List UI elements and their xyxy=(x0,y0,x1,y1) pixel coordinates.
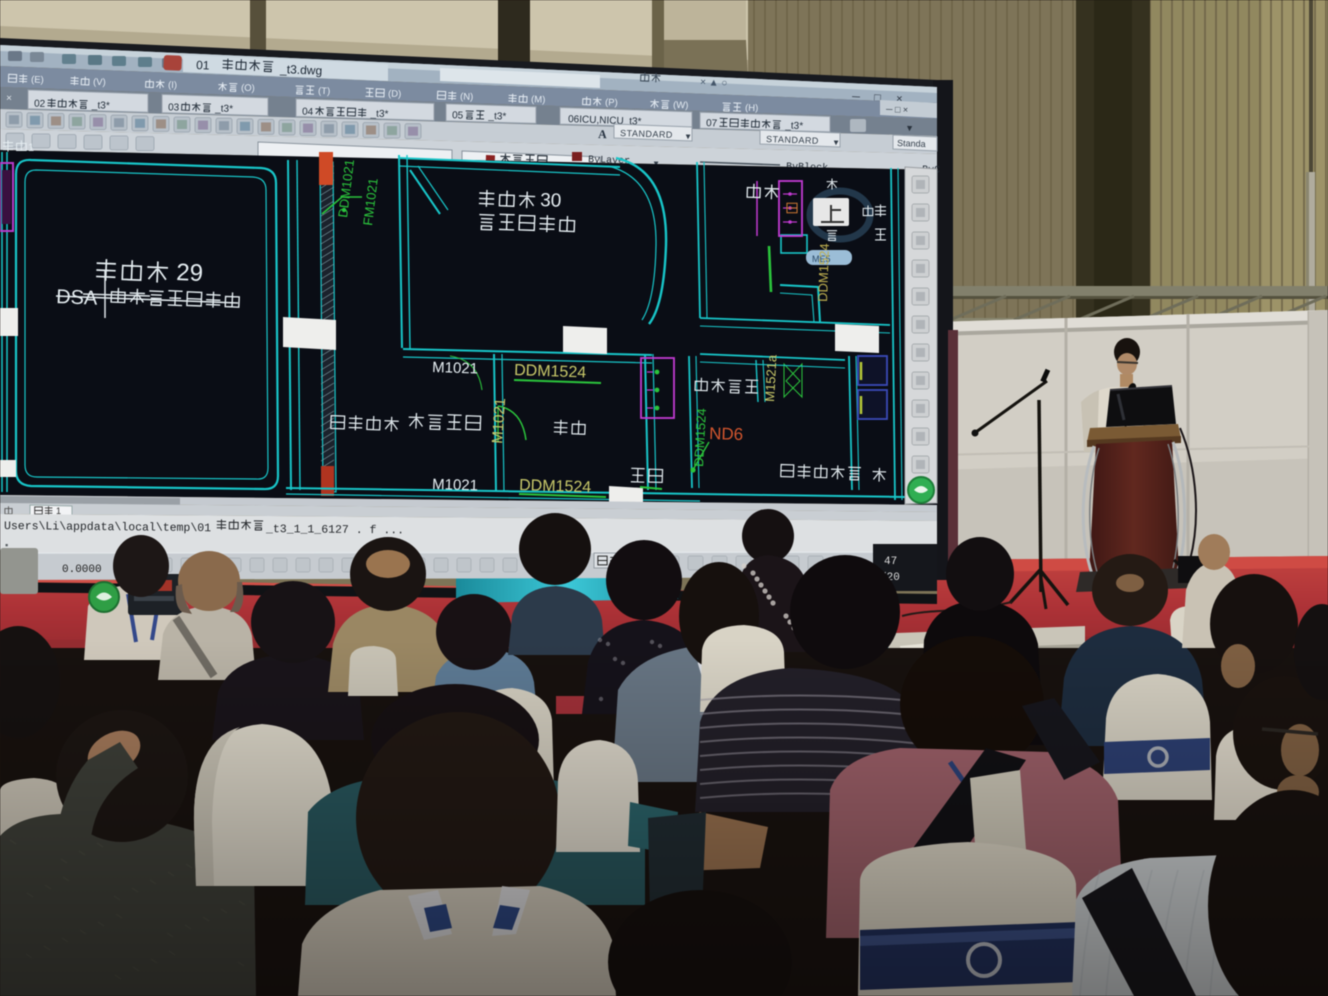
svg-text:─ □ ×: ─ □ × xyxy=(885,104,908,115)
svg-text:A: A xyxy=(598,127,607,141)
svg-text:(I): (I) xyxy=(168,80,177,91)
svg-text:M1021: M1021 xyxy=(432,359,478,378)
svg-text:(N): (N) xyxy=(460,91,474,103)
svg-text:_t3_1_1_6127 . f ...: _t3_1_1_6127 . f ... xyxy=(265,523,404,537)
svg-text:×: × xyxy=(6,93,12,104)
svg-text:_t3*: _t3* xyxy=(784,120,803,132)
svg-text:▼: ▼ xyxy=(905,123,914,133)
svg-text:M1521a: M1521a xyxy=(762,354,779,402)
svg-text:(M): (M) xyxy=(531,94,546,106)
svg-text:03: 03 xyxy=(168,102,180,113)
svg-text:1: 1 xyxy=(28,142,34,154)
svg-text:M1021: M1021 xyxy=(432,476,478,494)
svg-text:DDM1524: DDM1524 xyxy=(691,408,709,467)
svg-text:M1021: M1021 xyxy=(489,397,509,444)
svg-text:0.0000: 0.0000 xyxy=(62,564,102,576)
svg-text:▼: ▼ xyxy=(684,132,692,141)
svg-text:(P): (P) xyxy=(605,97,618,108)
svg-text:(H): (H) xyxy=(745,103,759,115)
svg-text:30: 30 xyxy=(540,190,562,212)
svg-text:_t3.dwg: _t3.dwg xyxy=(279,62,323,78)
svg-text:STANDARD: STANDARD xyxy=(766,134,819,146)
svg-text:(T): (T) xyxy=(318,86,331,97)
svg-text:29: 29 xyxy=(176,259,204,287)
svg-text:02: 02 xyxy=(34,99,46,110)
svg-text:(O): (O) xyxy=(241,83,255,95)
svg-text:_t3*: _t3* xyxy=(487,111,506,123)
svg-text:01: 01 xyxy=(196,58,210,73)
svg-text:_t3*: _t3* xyxy=(91,100,110,112)
svg-text:STANDARD: STANDARD xyxy=(620,128,673,140)
svg-text:× ▲ ○: × ▲ ○ xyxy=(700,77,728,89)
svg-text:DDM1524: DDM1524 xyxy=(514,362,587,382)
svg-text:DDM1524: DDM1524 xyxy=(815,243,832,302)
svg-text:05: 05 xyxy=(452,110,464,121)
svg-text:_t3*: _t3* xyxy=(369,108,388,120)
svg-text:Users\Li\appdata\local\temp\01: Users\Li\appdata\local\temp\01 xyxy=(4,520,211,535)
svg-text:Standa: Standa xyxy=(897,138,926,149)
svg-text:(V): (V) xyxy=(93,77,106,88)
svg-text:ND6: ND6 xyxy=(709,424,744,444)
svg-text:47: 47 xyxy=(884,556,897,568)
svg-text:(W): (W) xyxy=(673,100,689,112)
svg-text:_t3*: _t3* xyxy=(214,103,233,115)
svg-text:04: 04 xyxy=(302,107,314,118)
svg-text:(D): (D) xyxy=(388,88,402,100)
svg-text:07: 07 xyxy=(706,118,718,129)
svg-text:▼: ▼ xyxy=(832,138,840,147)
svg-text:(E): (E) xyxy=(31,74,44,85)
